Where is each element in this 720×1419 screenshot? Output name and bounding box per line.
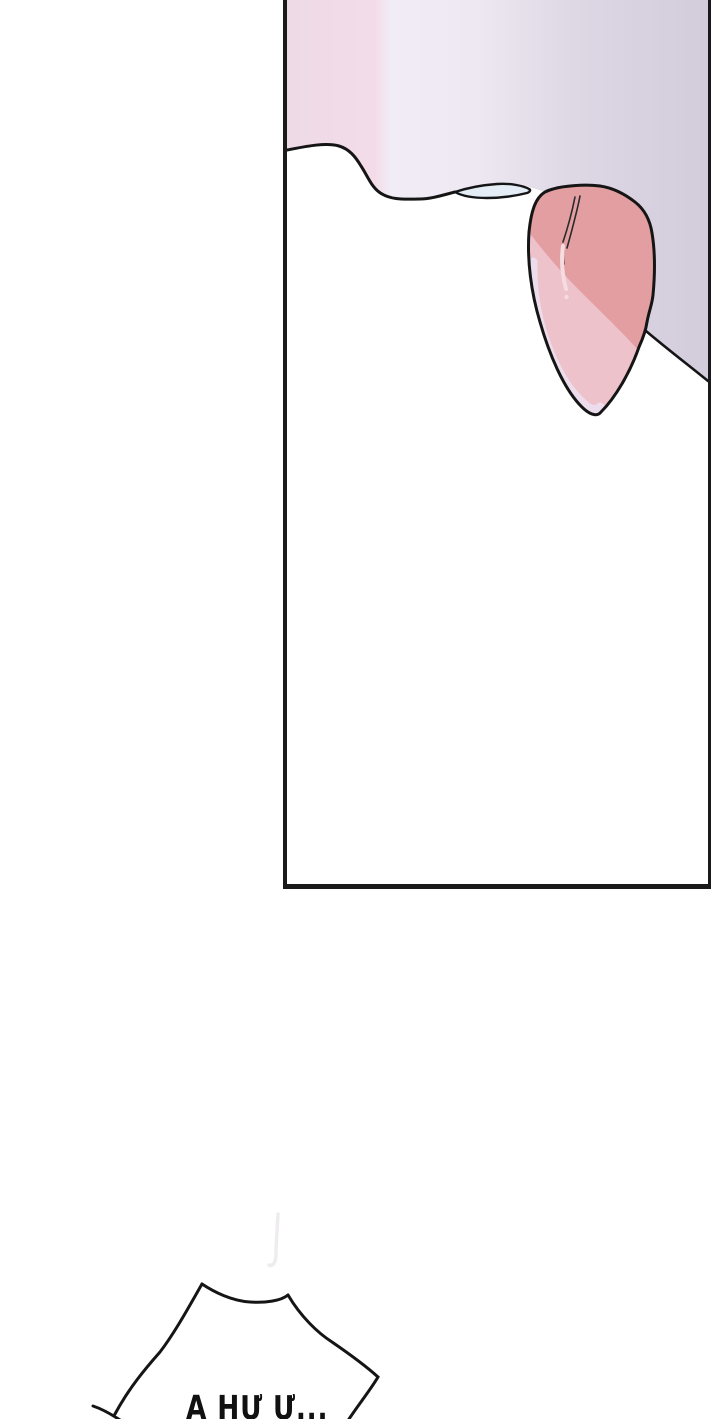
panel-border-left bbox=[283, 0, 287, 889]
panel-border-right bbox=[708, 0, 711, 889]
manga-panel bbox=[283, 0, 711, 889]
speech-bubble bbox=[80, 1190, 400, 1419]
panel-border-bottom bbox=[283, 884, 711, 889]
faint-accent-line bbox=[269, 1214, 278, 1265]
speech-bubble-text: A HƯ Ư... bbox=[186, 1391, 328, 1419]
comic-page: A HƯ Ư... bbox=[0, 0, 720, 1419]
ear-highlight-dot bbox=[564, 295, 568, 299]
ear-shape bbox=[528, 185, 654, 415]
